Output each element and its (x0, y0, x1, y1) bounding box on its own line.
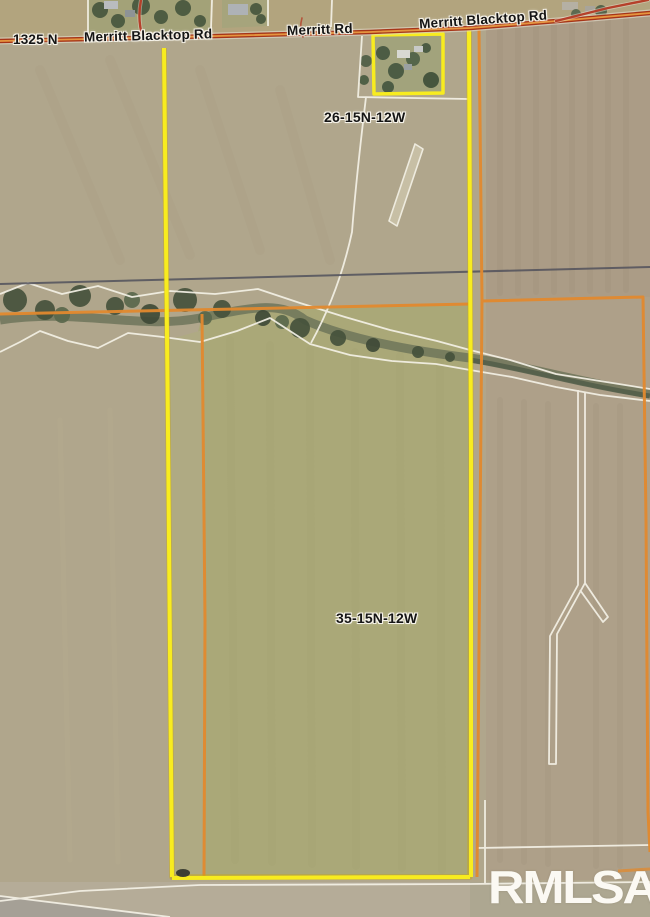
screenshot-root: 1325 N Merritt Blacktop Rd Merritt Rd Me… (0, 0, 650, 917)
road-label-1325-n: 1325 N (13, 32, 58, 47)
road-label-merritt-rd: Merritt Rd (287, 21, 353, 38)
section-label-26-15n-12w: 26-15N-12W (324, 109, 405, 125)
rmlsa-watermark: RMLSA (488, 860, 650, 914)
aerial-map (0, 0, 650, 917)
corner-shadow-object (176, 869, 190, 877)
section-label-35-15n-12w: 35-15N-12W (336, 610, 417, 626)
